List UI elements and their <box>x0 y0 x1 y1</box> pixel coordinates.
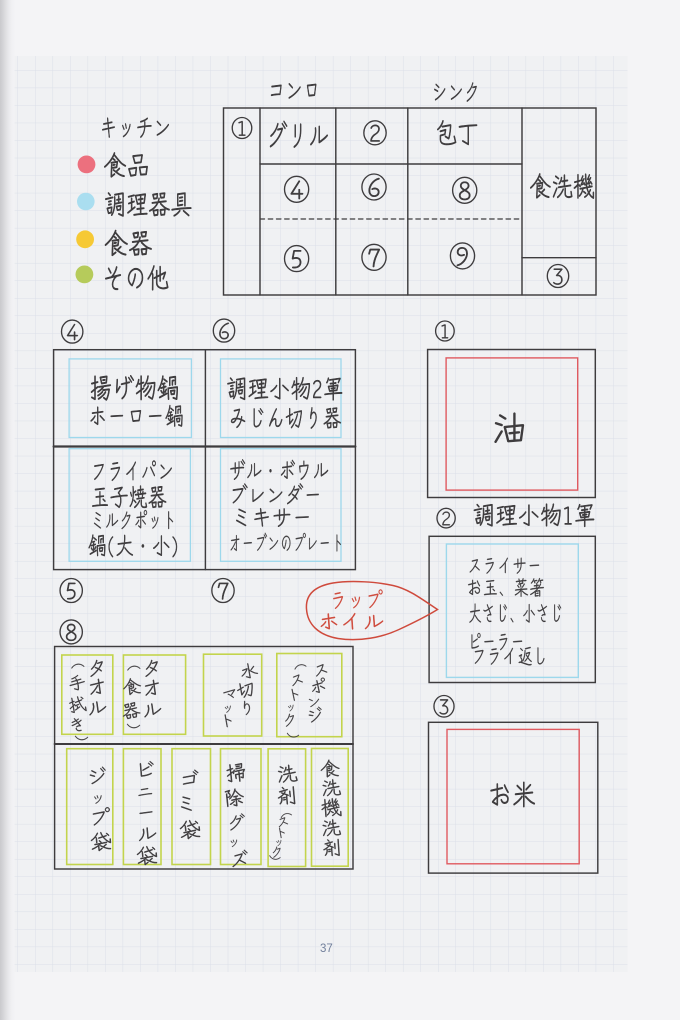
svg-text:37: 37 <box>320 943 333 955</box>
